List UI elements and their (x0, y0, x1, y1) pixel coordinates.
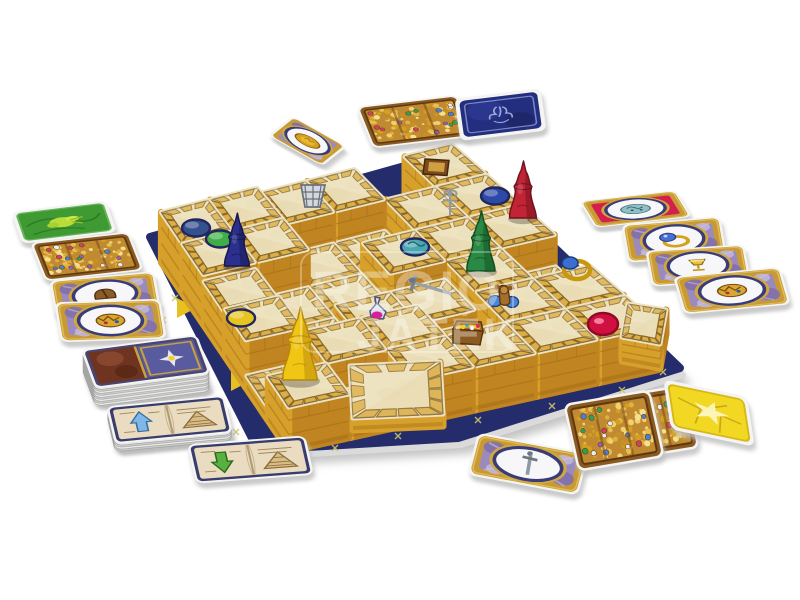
svg-text:JÁTÉK: JÁTÉK (357, 309, 520, 360)
